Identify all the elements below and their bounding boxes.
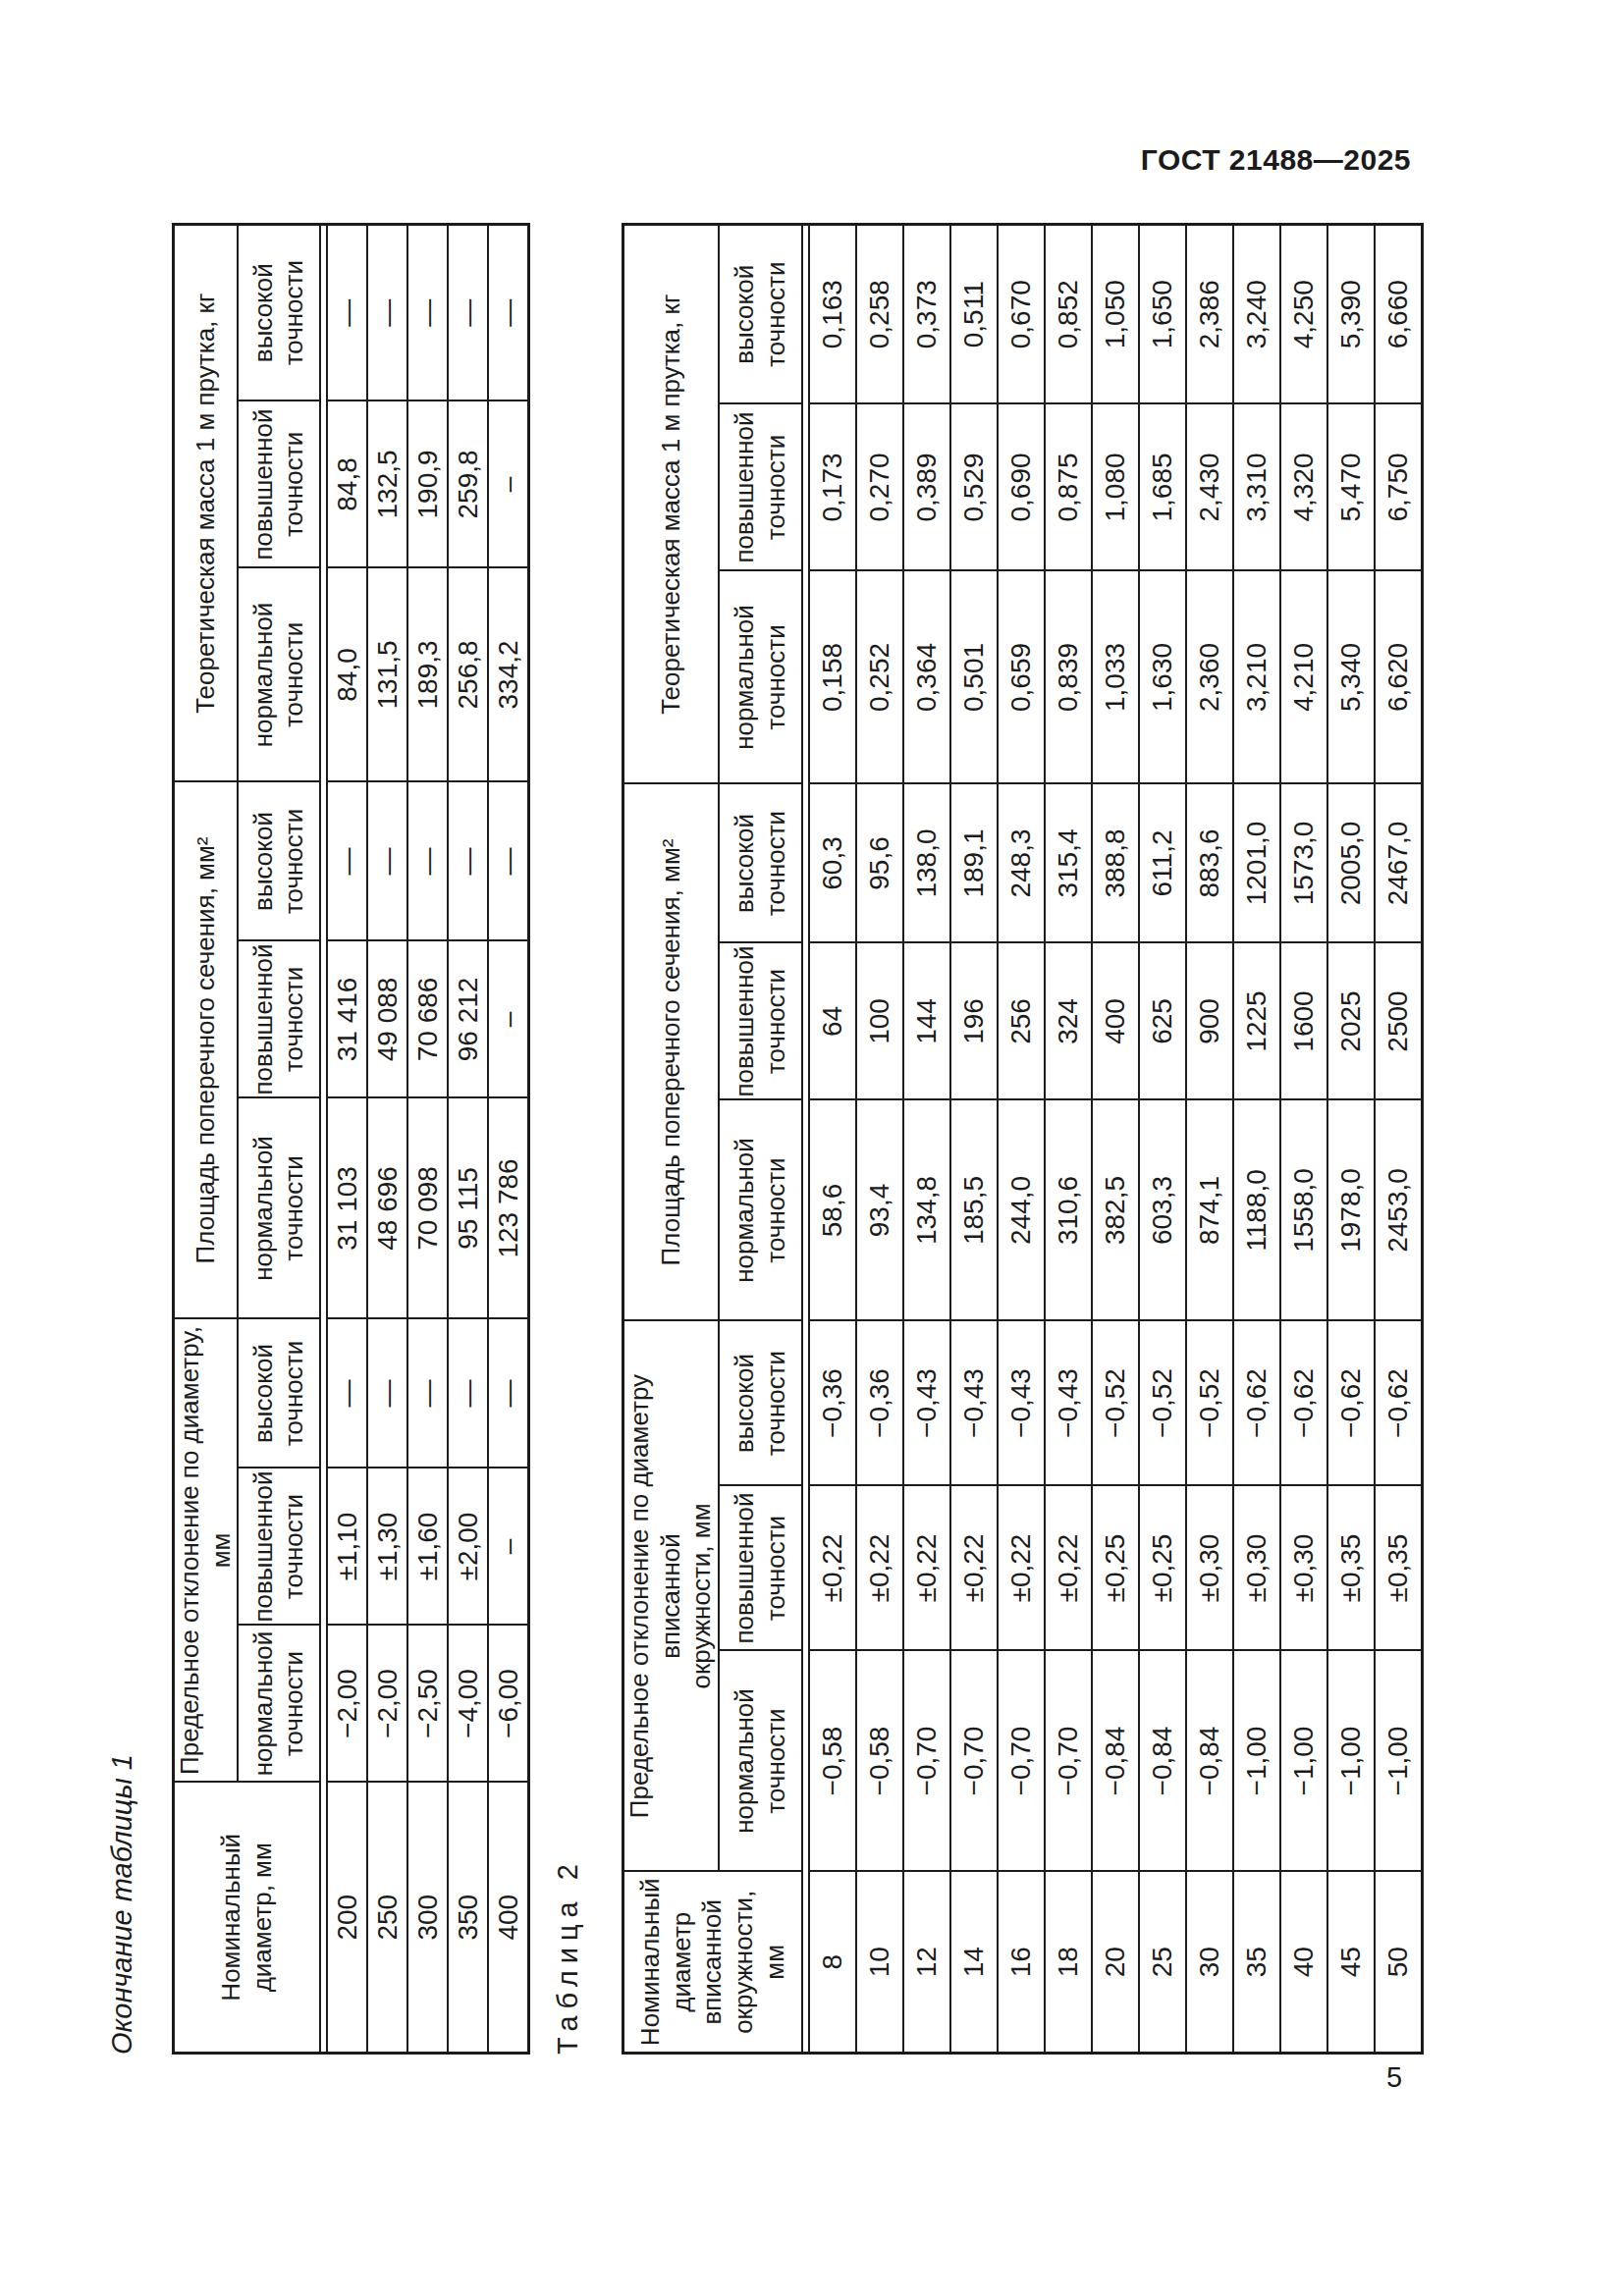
table-cell: 1225: [1233, 943, 1280, 1100]
column-header-inscribed-circle-diameter: Номинальный диаметр вписанной окружности…: [623, 1872, 803, 2054]
table-row: 12−0,70±0,22−0,43134,8144138,00,3640,389…: [903, 224, 950, 2053]
table-cell: 2500: [1375, 943, 1422, 1100]
rotated-tables-block: Окончание таблицы 1 Номинальный диаметр,…: [0, 0, 1624, 2296]
subhead-normal-accuracy: нормальной точности: [719, 1651, 802, 1872]
table-cell: 4,210: [1280, 570, 1327, 783]
table-cell: 256: [998, 943, 1045, 1100]
table-cell: 603,3: [1139, 1100, 1186, 1321]
table-cell: 20: [1092, 1872, 1139, 2054]
table-cell: 244,0: [998, 1100, 1045, 1321]
table-cell: 50: [1375, 1872, 1422, 2054]
table-cell: ±0,25: [1139, 1486, 1186, 1651]
table-cell: 0,852: [1045, 224, 1092, 403]
table-cell: 1600: [1280, 943, 1327, 1100]
table-cell: 0,670: [998, 224, 1045, 403]
table-row: 400−6,00–—123 786–—334,2–—: [488, 224, 528, 2053]
table-cell: −2,00: [327, 1626, 367, 1783]
table-cell: 883,6: [1186, 783, 1233, 942]
subhead-normal-accuracy: нормальной точности: [719, 1100, 802, 1321]
head-body-double-rule: [802, 224, 809, 2053]
table-row: 18−0,70±0,22−0,43310,6324315,40,8390,875…: [1045, 224, 1092, 2053]
table-cell: 0,501: [950, 570, 998, 783]
table-cell: 196: [950, 943, 998, 1100]
table-cell: ±1,10: [327, 1468, 367, 1626]
table-cell: 144: [903, 943, 950, 1100]
table-cell: 0,839: [1045, 570, 1092, 783]
table-cell: 30: [1186, 1872, 1233, 2054]
table-cell: −0,62: [1327, 1321, 1375, 1486]
table-cell: —: [488, 1318, 528, 1468]
table-cell: ±0,22: [950, 1486, 998, 1651]
table-cell: 315,4: [1045, 783, 1092, 942]
table-cell: −4,00: [448, 1626, 488, 1783]
table-cell: 0,270: [856, 403, 903, 570]
subhead-high-accuracy: высокой точности: [719, 783, 802, 942]
table-cell: −0,43: [1045, 1321, 1092, 1486]
table-cell: 190,9: [407, 400, 448, 567]
table-cell: 5,470: [1327, 403, 1375, 570]
page-number: 5: [1386, 2061, 1402, 2094]
table-cell: 134,8: [903, 1100, 950, 1321]
table-cell: 1,650: [1139, 224, 1186, 403]
table-cell: ±0,22: [809, 1486, 856, 1651]
table-cell: —: [448, 1318, 488, 1468]
subhead-increased-accuracy: повышенной точности: [238, 400, 320, 567]
table-cell: 35: [1233, 1872, 1280, 2054]
table-2-head: Номинальный диаметр вписанной окружности…: [623, 224, 810, 2053]
subhead-high-accuracy: высокой точности: [238, 1318, 320, 1468]
table2-caption: Таблица 2: [552, 1857, 584, 2055]
subhead-normal-accuracy: нормальной точности: [238, 1626, 320, 1783]
table-cell: 1,033: [1092, 570, 1139, 783]
table-cell: −0,36: [809, 1321, 856, 1486]
table-cell: 49 088: [367, 940, 407, 1097]
table-cell: 874,1: [1186, 1100, 1233, 1321]
table-cell: 2,430: [1186, 403, 1233, 570]
table-cell: 1188,0: [1233, 1100, 1280, 1321]
table-cell: 400: [488, 1783, 528, 2054]
table-cell: 10: [856, 1872, 903, 2054]
table-cell: 1,630: [1139, 570, 1186, 783]
table-cell: −0,52: [1092, 1321, 1139, 1486]
table-cell: 95 115: [448, 1097, 488, 1318]
table-1-head: Номинальный диаметр, мм Предельное откло…: [174, 224, 328, 2053]
subhead-increased-accuracy: повышенной точности: [238, 1468, 320, 1626]
table-cell: —: [327, 224, 367, 400]
subhead-high-accuracy: высокой точности: [238, 224, 320, 400]
subhead-normal-accuracy: нормальной точности: [719, 570, 802, 783]
table-cell: 2453,0: [1375, 1100, 1422, 1321]
table-1: Номинальный диаметр, мм Предельное откло…: [172, 223, 530, 2055]
table-cell: 310,6: [1045, 1100, 1092, 1321]
table-cell: 189,1: [950, 783, 998, 942]
table-cell: 6,750: [1375, 403, 1422, 570]
table-cell: −0,70: [998, 1651, 1045, 1872]
table-cell: 84,8: [327, 400, 367, 567]
table-cell: —: [448, 781, 488, 940]
table-cell: −0,52: [1186, 1321, 1233, 1486]
table-cell: 259,8: [448, 400, 488, 567]
table-cell: 8: [809, 1872, 856, 2054]
table-cell: 64: [809, 943, 856, 1100]
table-row: 20−0,84±0,25−0,52382,5400388,81,0331,080…: [1092, 224, 1139, 2053]
table-row: 200−2,00±1,10—31 10331 416—84,084,8—: [327, 224, 367, 2053]
table-cell: 96 212: [448, 940, 488, 1097]
table-cell: −2,00: [367, 1626, 407, 1783]
table-cell: 334,2: [488, 567, 528, 781]
table-cell: −0,84: [1139, 1651, 1186, 1872]
subhead-increased-accuracy: повышенной точности: [719, 1486, 802, 1651]
table-cell: −0,43: [998, 1321, 1045, 1486]
table-cell: 40: [1280, 1872, 1327, 2054]
table-row: 30−0,84±0,30−0,52874,1900883,62,3602,430…: [1186, 224, 1233, 2053]
subhead-increased-accuracy: повышенной точности: [719, 943, 802, 1100]
table-cell: 256,8: [448, 567, 488, 781]
table-cell: 5,390: [1327, 224, 1375, 403]
column-group-theoretical-mass: Теоретическая масса 1 м прутка, кг: [623, 224, 720, 783]
table-cell: 382,5: [1092, 1100, 1139, 1321]
table-cell: –: [488, 940, 528, 1097]
table-cell: —: [367, 224, 407, 400]
table-cell: 248,3: [998, 783, 1045, 942]
table-cell: 123 786: [488, 1097, 528, 1318]
table-cell: 611,2: [1139, 783, 1186, 942]
table-cell: 0,875: [1045, 403, 1092, 570]
table-cell: 6,660: [1375, 224, 1422, 403]
table-cell: 132,5: [367, 400, 407, 567]
table-cell: 0,163: [809, 224, 856, 403]
table-cell: 84,0: [327, 567, 367, 781]
table-cell: 0,364: [903, 570, 950, 783]
table-cell: −2,50: [407, 1626, 448, 1783]
table-cell: 31 103: [327, 1097, 367, 1318]
table-cell: −0,62: [1375, 1321, 1422, 1486]
table-cell: —: [488, 224, 528, 400]
table-cell: 3,210: [1233, 570, 1280, 783]
table-cell: −0,70: [1045, 1651, 1092, 1872]
table-cell: 0,158: [809, 570, 856, 783]
table-cell: 48 696: [367, 1097, 407, 1318]
column-group-theoretical-mass: Теоретическая масса 1 м прутка, кг: [174, 224, 239, 781]
table-cell: —: [327, 1318, 367, 1468]
table-cell: 2,360: [1186, 570, 1233, 783]
table-2: Номинальный диаметр вписанной окружности…: [622, 223, 1424, 2055]
table-cell: −0,52: [1139, 1321, 1186, 1486]
table-cell: −1,00: [1327, 1651, 1375, 1872]
table-row: 350−4,00±2,00—95 11596 212—256,8259,8—: [448, 224, 488, 2053]
table-cell: 350: [448, 1783, 488, 2054]
table-cell: −0,62: [1280, 1321, 1327, 1486]
table-cell: 14: [950, 1872, 998, 2054]
table-row: 35−1,00±0,30−0,621188,012251201,03,2103,…: [1233, 224, 1280, 2053]
table-cell: 6,620: [1375, 570, 1422, 783]
table-cell: 18: [1045, 1872, 1092, 2054]
table-cell: 300: [407, 1783, 448, 2054]
table-cell: 25: [1139, 1872, 1186, 2054]
table-cell: 131,5: [367, 567, 407, 781]
table-cell: 185,5: [950, 1100, 998, 1321]
table-row: 14−0,70±0,22−0,43185,5196189,10,5010,529…: [950, 224, 998, 2053]
table-cell: 2025: [1327, 943, 1375, 1100]
column-header-nominal-diameter: Номинальный диаметр, мм: [174, 1783, 321, 2054]
table-cell: —: [407, 1318, 448, 1468]
table-cell: 95,6: [856, 783, 903, 942]
table-cell: 4,320: [1280, 403, 1327, 570]
table-cell: −0,43: [903, 1321, 950, 1486]
subhead-normal-accuracy: нормальной точности: [238, 567, 320, 781]
table-cell: −0,43: [950, 1321, 998, 1486]
subhead-increased-accuracy: повышенной точности: [719, 403, 802, 570]
subhead-high-accuracy: высокой точности: [719, 1321, 802, 1486]
table-cell: 4,250: [1280, 224, 1327, 403]
table-cell: 1,050: [1092, 224, 1139, 403]
table-cell: 1558,0: [1280, 1100, 1327, 1321]
subhead-increased-accuracy: повышенной точности: [238, 940, 320, 1097]
table-cell: —: [327, 781, 367, 940]
table-cell: —: [448, 224, 488, 400]
table-cell: 45: [1327, 1872, 1375, 2054]
table-cell: −0,36: [856, 1321, 903, 1486]
table-cell: 1201,0: [1233, 783, 1280, 942]
table-cell: 0,389: [903, 403, 950, 570]
table-row: 25−0,84±0,25−0,52603,3625611,21,6301,685…: [1139, 224, 1186, 2053]
table-cell: ±0,22: [1045, 1486, 1092, 1651]
column-group-deviation: Предельное отклонение по диаметру вписан…: [623, 1321, 720, 1872]
table-cell: 12: [903, 1872, 950, 2054]
table-cell: 3,240: [1233, 224, 1280, 403]
table-cell: ±0,22: [903, 1486, 950, 1651]
table-cell: 324: [1045, 943, 1092, 1100]
table-cell: 100: [856, 943, 903, 1100]
table-cell: 2005,0: [1327, 783, 1375, 942]
table-row: 300−2,50±1,60—70 09870 686—189,3190,9—: [407, 224, 448, 2053]
table-cell: —: [488, 781, 528, 940]
table-cell: −1,00: [1280, 1651, 1327, 1872]
table-cell: 58,6: [809, 1100, 856, 1321]
table-cell: 388,8: [1092, 783, 1139, 942]
table-cell: ±0,35: [1375, 1486, 1422, 1651]
table-cell: ±0,30: [1186, 1486, 1233, 1651]
table-cell: −1,00: [1375, 1651, 1422, 1872]
table-cell: −0,84: [1092, 1651, 1139, 1872]
table-cell: ±1,30: [367, 1468, 407, 1626]
column-group-cross-section-area: Площадь поперечного сечения, мм²: [623, 783, 720, 1320]
table-cell: 0,690: [998, 403, 1045, 570]
subhead-high-accuracy: высокой точности: [719, 224, 802, 403]
table-cell: —: [407, 224, 448, 400]
table-cell: 1,080: [1092, 403, 1139, 570]
table-row: 50−1,00±0,35−0,622453,025002467,06,6206,…: [1375, 224, 1422, 2053]
table-cell: –: [488, 1468, 528, 1626]
table-cell: −0,58: [809, 1651, 856, 1872]
table-cell: 400: [1092, 943, 1139, 1100]
table-cell: 31 416: [327, 940, 367, 1097]
head-body-double-rule: [320, 224, 327, 2053]
table-cell: —: [367, 1318, 407, 1468]
column-group-cross-section-area: Площадь поперечного сечения, мм²: [174, 781, 239, 1318]
table-2-body: 8−0,58±0,22−0,3658,66460,30,1580,1730,16…: [809, 224, 1422, 2053]
subhead-high-accuracy: высокой точности: [238, 781, 320, 940]
subhead-normal-accuracy: нормальной точности: [238, 1097, 320, 1318]
table-cell: 0,258: [856, 224, 903, 403]
table-row: 8−0,58±0,22−0,3658,66460,30,1580,1730,16…: [809, 224, 856, 2053]
table-cell: −0,70: [950, 1651, 998, 1872]
table-cell: −1,00: [1233, 1651, 1280, 1872]
table-cell: –: [488, 400, 528, 567]
table-cell: 0,529: [950, 403, 998, 570]
table-cell: 2,386: [1186, 224, 1233, 403]
table-cell: —: [407, 781, 448, 940]
table-cell: 189,3: [407, 567, 448, 781]
table-cell: ±0,22: [998, 1486, 1045, 1651]
table-cell: −0,62: [1233, 1321, 1280, 1486]
table1-caption: Окончание таблицы 1: [106, 1754, 138, 2055]
document-page: ГОСТ 21488—2025 Окончание таблицы 1 Номи…: [0, 0, 1624, 2296]
table-cell: ±0,25: [1092, 1486, 1139, 1651]
table-cell: —: [367, 781, 407, 940]
table-cell: 0,511: [950, 224, 998, 403]
table-cell: ±2,00: [448, 1468, 488, 1626]
table-1-body: 200−2,00±1,10—31 10331 416—84,084,8—250−…: [327, 224, 528, 2053]
table-cell: ±0,30: [1233, 1486, 1280, 1651]
table-cell: 200: [327, 1783, 367, 2054]
table-cell: 16: [998, 1872, 1045, 2054]
table-cell: 0,659: [998, 570, 1045, 783]
column-group-deviation: Предельное отклонение по диаметру, мм: [174, 1318, 239, 1782]
table-cell: 0,373: [903, 224, 950, 403]
table-cell: ±1,60: [407, 1468, 448, 1626]
table-cell: −6,00: [488, 1626, 528, 1783]
table-row: 16−0,70±0,22−0,43244,0256248,30,6590,690…: [998, 224, 1045, 2053]
table-cell: −0,58: [856, 1651, 903, 1872]
table-cell: −0,84: [1186, 1651, 1233, 1872]
table-cell: 70 098: [407, 1097, 448, 1318]
table-cell: ±0,30: [1280, 1486, 1327, 1651]
table-cell: 70 686: [407, 940, 448, 1097]
table-cell: 250: [367, 1783, 407, 2054]
table-cell: −0,70: [903, 1651, 950, 1872]
table-row: 10−0,58±0,22−0,3693,410095,60,2520,2700,…: [856, 224, 903, 2053]
table-cell: 2467,0: [1375, 783, 1422, 942]
table-cell: 93,4: [856, 1100, 903, 1321]
table-cell: 1978,0: [1327, 1100, 1375, 1321]
table-cell: 0,173: [809, 403, 856, 570]
table-cell: 1573,0: [1280, 783, 1327, 942]
table-row: 40−1,00±0,30−0,621558,016001573,04,2104,…: [1280, 224, 1327, 2053]
table-cell: 60,3: [809, 783, 856, 942]
table-cell: ±0,22: [856, 1486, 903, 1651]
table-cell: 625: [1139, 943, 1186, 1100]
table-cell: 900: [1186, 943, 1233, 1100]
table-row: 250−2,00±1,30—48 69649 088—131,5132,5—: [367, 224, 407, 2053]
table-cell: 5,340: [1327, 570, 1375, 783]
table-cell: 138,0: [903, 783, 950, 942]
table-cell: 3,310: [1233, 403, 1280, 570]
table-cell: ±0,35: [1327, 1486, 1375, 1651]
table-cell: 0,252: [856, 570, 903, 783]
table-row: 45−1,00±0,35−0,621978,020252005,05,3405,…: [1327, 224, 1375, 2053]
table-cell: 1,685: [1139, 403, 1186, 570]
